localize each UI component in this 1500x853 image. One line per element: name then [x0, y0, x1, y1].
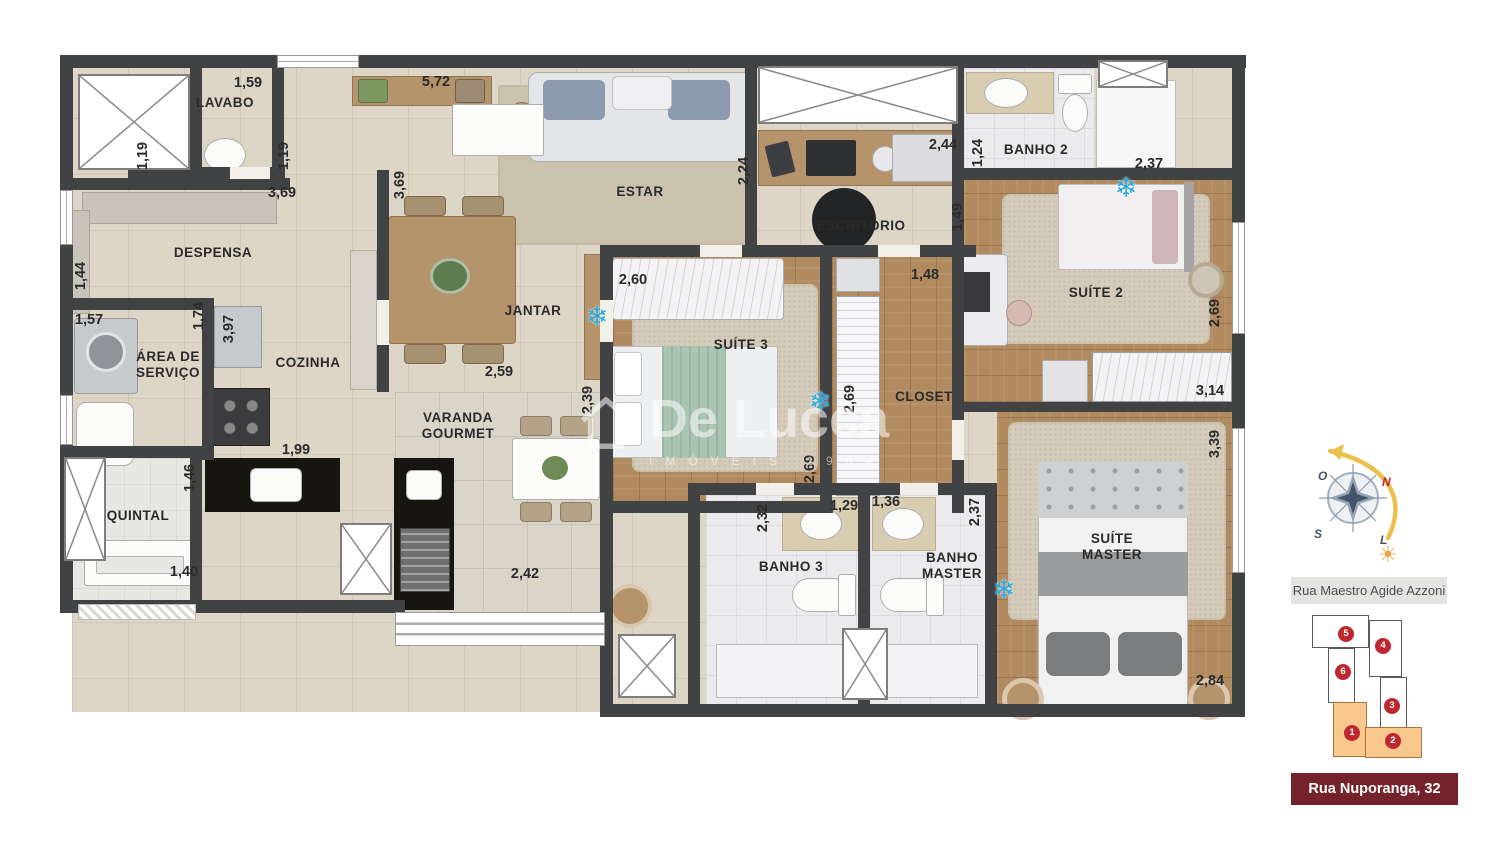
dim-label: 3,69 — [268, 185, 296, 201]
dim-label: 1,40 — [170, 564, 198, 580]
wall-segment — [610, 704, 1245, 717]
dim-label: 2,44 — [929, 137, 957, 153]
pillow-master — [1046, 632, 1110, 676]
door-opening — [878, 245, 920, 257]
dim-label: 3,39 — [1207, 430, 1223, 458]
varanda-chair — [520, 416, 552, 436]
stove — [212, 388, 270, 446]
shower-banho2 — [1096, 80, 1176, 168]
headboard-master — [1038, 462, 1188, 518]
dim-label: 2,37 — [967, 498, 983, 526]
wall-segment — [820, 245, 832, 513]
room-label-despensa: DESPENSA — [174, 245, 252, 261]
stool — [1006, 300, 1032, 326]
keyplan-unit-1: 1 — [1344, 725, 1360, 741]
wall-segment — [1232, 55, 1245, 717]
pillow-master — [1118, 632, 1182, 676]
pillow-suite2 — [1152, 190, 1178, 264]
shaft-box — [1098, 60, 1168, 88]
grill — [400, 528, 450, 592]
floor-plan-page: LAVABO DESPENSA ÁREA DE SERVIÇO QUINTAL … — [0, 0, 1500, 853]
pillow — [614, 402, 642, 446]
room-label-cozinha: COZINHA — [276, 355, 341, 371]
dim-label: 2,37 — [1135, 156, 1163, 172]
window — [277, 55, 359, 68]
dim-label: 2,59 — [485, 364, 513, 380]
room-label-suite3: SUÍTE 3 — [714, 337, 769, 353]
dim-label: 2,32 — [755, 504, 771, 532]
wardrobe-suite3 — [612, 258, 784, 320]
room-label-escritorio: ESCRITÓRIO — [816, 218, 905, 234]
sofa-pillow — [543, 80, 605, 120]
bed-blanket — [662, 346, 726, 458]
room-label-lavabo: LAVABO — [196, 95, 254, 111]
door-opening — [900, 483, 938, 495]
compass-north: N — [1382, 475, 1391, 489]
dim-label: 1,44 — [73, 262, 89, 290]
ac-snowflake-icon: ❄ — [1115, 175, 1138, 202]
room-label-suite2: SUÍTE 2 — [1069, 285, 1124, 301]
window — [1232, 428, 1245, 573]
dim-label: 2,60 — [619, 272, 647, 288]
wall-segment — [952, 402, 1245, 412]
room-label-suite-master: SUÍTE MASTER — [1082, 531, 1142, 563]
door-opening — [230, 167, 270, 179]
dim-label: 1,48 — [911, 267, 939, 283]
table-plant — [430, 258, 470, 294]
dim-label: 2,39 — [580, 386, 596, 414]
shaft-box — [618, 634, 676, 698]
wall-segment — [60, 178, 290, 190]
sun-icon: ☀ — [1378, 542, 1398, 567]
room-label-area-servico: ÁREA DE SERVIÇO — [136, 349, 200, 381]
dim-label: 1,29 — [830, 498, 858, 514]
compass-south: S — [1314, 527, 1322, 541]
gourmet-sink — [406, 470, 442, 500]
varanda-chair — [520, 502, 552, 522]
keyplan-unit-4: 4 — [1375, 638, 1391, 654]
shaft-box — [340, 523, 392, 595]
door-opening — [377, 300, 389, 345]
compass-rose: O N S L ☀ — [1298, 438, 1416, 568]
varanda-chair — [560, 502, 592, 522]
plant-box — [358, 79, 388, 103]
sink-banho-master — [882, 508, 924, 540]
quintal-grate — [78, 604, 196, 620]
room-label-banho-master: BANHO MASTER — [922, 550, 982, 582]
room-label-banho2: BANHO 2 — [1004, 142, 1068, 158]
dining-chair — [462, 344, 504, 364]
dim-label: 1,19 — [135, 142, 151, 170]
dim-label: 1,24 — [970, 139, 986, 167]
suite3-table — [608, 584, 652, 628]
shower-banho3 — [716, 644, 852, 698]
dim-label: 1,59 — [234, 75, 262, 91]
room-label-quintal: QUINTAL — [107, 508, 170, 524]
sink-banho2 — [984, 78, 1028, 108]
wall-segment — [688, 483, 700, 717]
keyplan-unit-5: 5 — [1338, 626, 1354, 642]
kitchen-cabinet — [350, 250, 377, 390]
dim-label: 2,69 — [802, 455, 818, 483]
wall-segment — [190, 62, 202, 174]
wall-segment — [60, 55, 1246, 68]
keyplan-unit-2: 2 — [1385, 733, 1401, 749]
varanda-plant — [542, 456, 568, 480]
compass-west: O — [1318, 469, 1328, 483]
door-opening — [952, 420, 964, 460]
toilet-tank-banho2 — [1058, 74, 1092, 94]
varanda-chair — [560, 416, 592, 436]
washer-door — [86, 332, 126, 372]
headboard-suite2 — [1184, 182, 1194, 272]
window — [60, 190, 73, 245]
closet-cabinet — [836, 258, 880, 292]
dim-label: 1,46 — [182, 464, 198, 492]
dim-label: 1,99 — [282, 442, 310, 458]
shaft-box — [758, 66, 958, 124]
dim-label: 3,69 — [392, 171, 408, 199]
dim-label: 2,69 — [842, 385, 858, 413]
dim-label: 5,72 — [422, 74, 450, 90]
room-label-closet: CLOSET — [895, 389, 953, 405]
wall-segment — [952, 168, 1237, 180]
toilet-tank-banho3 — [838, 574, 856, 616]
window — [1232, 222, 1245, 334]
dining-chair — [462, 196, 504, 216]
door-opening — [700, 245, 742, 257]
toilet-banho2 — [1062, 94, 1088, 132]
wall-segment — [60, 298, 212, 310]
dim-label: 2,24 — [736, 157, 752, 185]
dim-label: 2,69 — [1207, 299, 1223, 327]
dim-label: 1,36 — [872, 494, 900, 510]
dim-label: 2,42 — [511, 566, 539, 582]
laptop — [806, 140, 856, 176]
decor-box — [455, 79, 485, 103]
wall-segment — [377, 170, 389, 392]
dim-label: 1,74 — [191, 302, 207, 330]
room-label-varanda: VARANDA GOURMET — [422, 410, 495, 442]
dim-label: 1,49 — [950, 203, 966, 231]
dining-chair — [404, 344, 446, 364]
sofa-cushion — [612, 76, 672, 110]
room-label-banho3: BANHO 3 — [759, 559, 823, 575]
dim-label: 3,14 — [1196, 383, 1224, 399]
suite2-cabinet — [1042, 360, 1088, 402]
suite2-tv — [962, 272, 990, 312]
door-opening — [756, 483, 794, 495]
ac-snowflake-icon: ❄ — [993, 577, 1016, 604]
keyplan-unit-6: 6 — [1335, 664, 1351, 680]
dim-label: 1,19 — [276, 142, 292, 170]
room-label-estar: ESTAR — [616, 184, 663, 200]
keyplan-unit-3: 3 — [1384, 698, 1400, 714]
pouf — [1188, 262, 1224, 298]
shaft-box — [842, 628, 888, 700]
wall-segment — [600, 501, 833, 513]
window — [60, 395, 73, 445]
room-label-jantar: JANTAR — [505, 303, 562, 319]
dim-label: 2,84 — [1196, 673, 1224, 689]
street-label-top: Rua Maestro Agide Azzoni — [1291, 577, 1447, 604]
varanda-railing — [395, 612, 605, 646]
pantry-shelf — [82, 192, 277, 224]
pillow — [614, 352, 642, 396]
estar-bench — [452, 104, 544, 156]
dim-label: 3,97 — [221, 315, 237, 343]
dining-chair — [404, 196, 446, 216]
shaft-box — [78, 74, 190, 170]
ac-snowflake-icon: ❄ — [586, 304, 609, 331]
wall-segment — [688, 483, 997, 495]
kitchen-sink — [250, 468, 302, 502]
sofa-pillow — [668, 80, 730, 120]
ac-snowflake-icon: ❄ — [809, 389, 832, 416]
dim-label: 1,57 — [75, 312, 103, 328]
shaft-box — [64, 457, 106, 561]
street-label-bottom: Rua Nuporanga, 32 — [1291, 773, 1458, 805]
shower-banho-master — [876, 644, 978, 698]
